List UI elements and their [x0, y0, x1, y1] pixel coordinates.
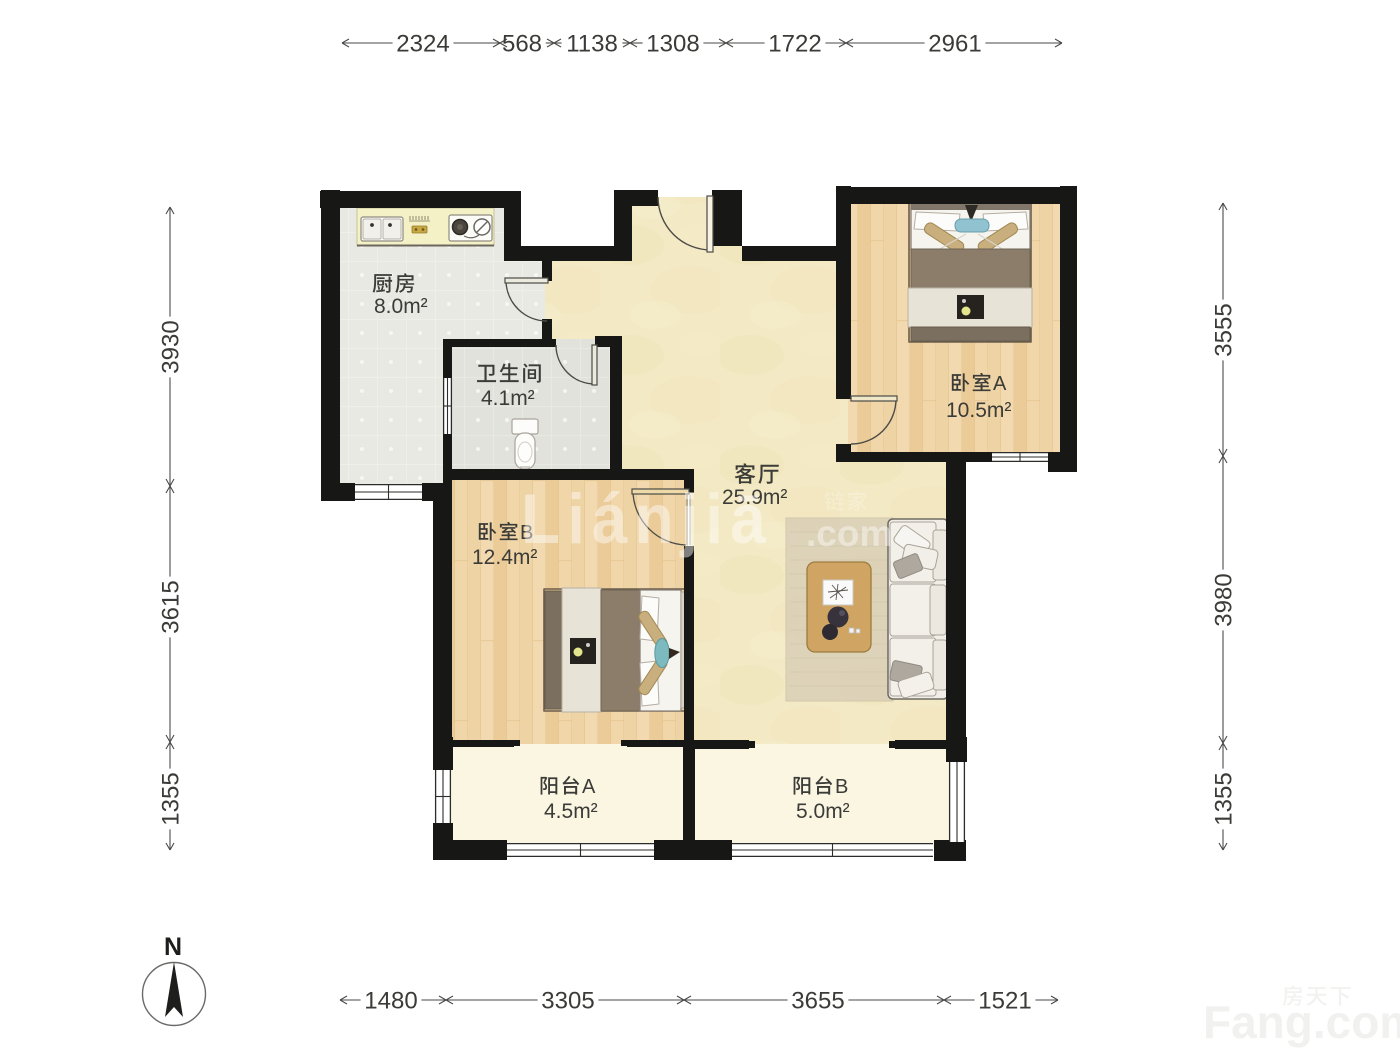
svg-text:4.5m²: 4.5m² [544, 800, 598, 823]
svg-text:N: N [164, 933, 182, 961]
svg-text:8.0m²: 8.0m² [374, 295, 428, 318]
svg-text:1355: 1355 [158, 772, 185, 825]
svg-text:1138: 1138 [566, 31, 618, 58]
svg-text:1480: 1480 [364, 988, 417, 1015]
svg-text:10.5m²: 10.5m² [946, 399, 1011, 422]
svg-text:2324: 2324 [396, 31, 449, 58]
svg-text:Fang.com: Fang.com [1203, 996, 1400, 1048]
svg-text:B: B [835, 776, 848, 798]
svg-text:568: 568 [502, 31, 542, 58]
svg-text:1355: 1355 [1211, 772, 1238, 825]
svg-text:2961: 2961 [928, 31, 981, 58]
svg-text:3555: 3555 [1211, 303, 1238, 356]
svg-text:.com: .com [806, 513, 892, 554]
svg-text:A: A [993, 373, 1007, 395]
svg-text:1308: 1308 [646, 31, 699, 58]
svg-text:3930: 3930 [158, 320, 185, 373]
svg-text:3305: 3305 [541, 988, 594, 1015]
svg-text:A: A [582, 776, 596, 798]
svg-text:5.0m²: 5.0m² [796, 800, 850, 823]
svg-text:3615: 3615 [158, 580, 185, 633]
svg-text:1722: 1722 [768, 31, 821, 58]
svg-text:1521: 1521 [978, 988, 1031, 1015]
svg-text:3980: 3980 [1211, 573, 1238, 626]
svg-text:Liánjiā: Liánjiā [521, 480, 773, 558]
svg-text:4.1m²: 4.1m² [481, 387, 535, 410]
svg-text:3655: 3655 [791, 988, 844, 1015]
